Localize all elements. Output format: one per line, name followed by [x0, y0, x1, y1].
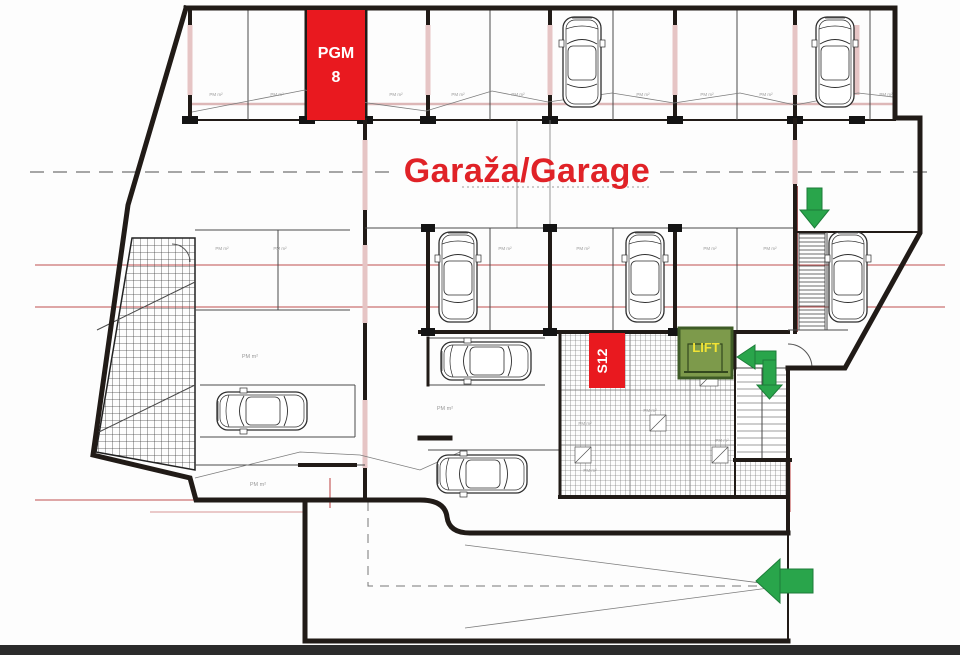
stall-label: PM m²: [636, 92, 650, 97]
s12-box: S12: [589, 333, 625, 388]
stall-label: PM m²: [511, 92, 525, 97]
pgm-8-box: PGM 8: [307, 10, 365, 120]
car-icon: [622, 232, 668, 322]
stall-label: PM m²: [759, 92, 773, 97]
s12-label: S12: [594, 348, 610, 373]
car-icon: [559, 17, 605, 107]
car-icon: [435, 232, 481, 322]
stall-label: PM m²: [578, 421, 592, 426]
stall-label: PM m²: [583, 468, 597, 473]
page-title: Garaža/Garage: [404, 152, 651, 190]
pgm-8-rect: [307, 10, 365, 120]
entrance-arrow-down-icon: [800, 188, 829, 228]
stall-label: PM m²: [703, 246, 717, 251]
stall-label: PM m²: [451, 92, 465, 97]
car-icon: [812, 17, 858, 107]
stall-label: PM m²: [576, 246, 590, 251]
stall-label: PM m²: [498, 246, 512, 251]
driveway: [368, 502, 788, 641]
stall-label: PM m²: [715, 438, 729, 443]
car-icon: [441, 338, 531, 384]
pgm-8-label-line1: PGM: [318, 45, 354, 62]
floor-plan-page: PM m² PM m² PM m² PM m² PM m² PM m² PM m…: [0, 0, 960, 655]
bottom-bar: [0, 645, 960, 655]
ramp-exit-arrow-left-icon: [756, 559, 813, 603]
lift-box: LIFT: [679, 328, 732, 378]
stall-label: PM m²: [879, 92, 893, 97]
ramp-area-right: [799, 233, 825, 330]
car-icon: [437, 451, 527, 497]
stall-label: PM m²: [273, 246, 287, 251]
stall-label: PM m²: [215, 246, 229, 251]
stall-label: PM m²: [700, 92, 714, 97]
room-label: PM m²: [242, 354, 258, 360]
car-icon: [217, 388, 307, 434]
stairs-area-left: [96, 238, 195, 470]
room-label: PM m²: [437, 406, 453, 412]
pgm-8-label-line2: 8: [332, 69, 341, 86]
lift-label: LIFT: [692, 340, 719, 355]
floor-plan-canvas: PM m² PM m² PM m² PM m² PM m² PM m² PM m…: [0, 0, 960, 655]
stall-label: PM m²: [209, 92, 223, 97]
room-label: PM m²: [250, 482, 266, 488]
stall-label: PM m²: [643, 408, 657, 413]
stall-label: PM m²: [270, 92, 284, 97]
stall-label: PM m²: [763, 246, 777, 251]
car-icon: [825, 232, 871, 322]
stall-label: PM m²: [389, 92, 403, 97]
